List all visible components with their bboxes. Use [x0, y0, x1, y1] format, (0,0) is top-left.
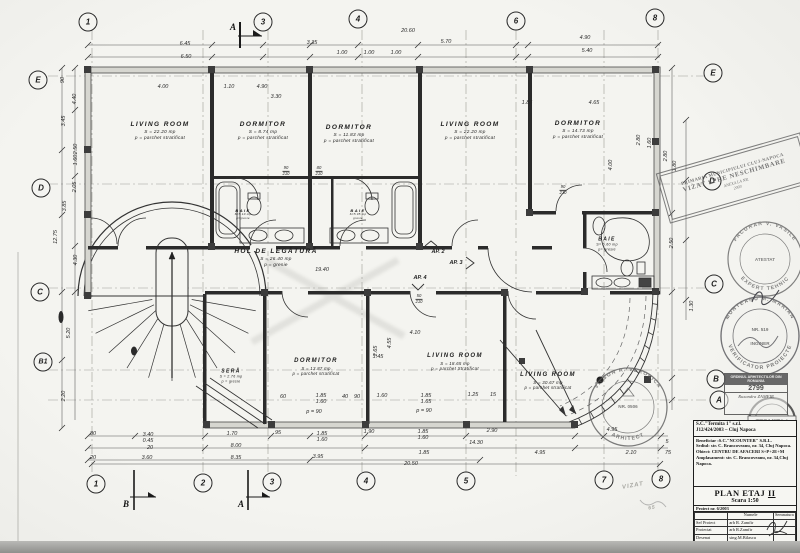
grid-marker: B	[707, 370, 726, 389]
pencil-note-number: 65	[648, 504, 656, 511]
room-label: DORMITOR S = 14.73 mp p = parchet strati…	[553, 120, 603, 140]
grid-marker: E	[704, 64, 723, 83]
apartment-label: AP. 3	[449, 260, 462, 266]
dimension-text: 95	[275, 430, 281, 436]
room-name: LIVING ROOM	[130, 121, 189, 129]
dimension-text: 6.45	[180, 41, 191, 47]
dimension-text: 20.60	[401, 28, 415, 34]
grid-marker: C	[705, 275, 724, 294]
grid-marker: 8	[652, 470, 671, 489]
grid-marker: 3	[254, 13, 273, 32]
door-size-tag: 80 210	[316, 166, 323, 176]
dimension-text: 2.80	[636, 135, 642, 146]
dimension-text: 4.95	[535, 450, 546, 456]
dimension-text: p = 90	[416, 408, 431, 414]
dimension-text: 1.60	[377, 393, 388, 399]
project-info: Beneficiar :S.C."NCOUNTER" S.R.L.Sediul:…	[694, 437, 796, 487]
dimension-text: 3.85	[62, 201, 68, 212]
room-label: LIVING ROOM S = 22.20 mp p = parchet str…	[440, 121, 499, 141]
dimension-text: 2.90	[487, 428, 498, 434]
room-floor-finish: p = gresie	[220, 379, 243, 383]
grid-marker: 1	[87, 475, 106, 494]
grid-marker: E	[29, 71, 48, 90]
dimension-text: 5.40	[582, 48, 593, 54]
dimension-text: 20.50	[404, 461, 418, 467]
dimension-text: 5	[665, 439, 668, 445]
dimension-text: 2.05	[72, 182, 78, 193]
room-name: LIVING ROOM	[427, 353, 483, 361]
dimension-text: 4.40	[72, 94, 78, 105]
grid-marker: 6	[507, 12, 526, 31]
dimension-text: 5.20	[66, 328, 72, 339]
grid-marker: 2	[194, 474, 213, 493]
apartment-label: AP. 4	[413, 275, 426, 281]
dimension-text: 3.95	[313, 454, 324, 460]
dimension-text: 80	[90, 431, 96, 437]
dimension-text: 6.50	[181, 54, 192, 60]
dimension-text: 2.50	[669, 238, 675, 249]
grid-marker: C	[31, 283, 50, 302]
room-name: LIVING ROOM	[520, 372, 576, 380]
apartment-label: AP. 2	[431, 249, 444, 255]
stamp-line: 2003	[733, 184, 742, 191]
dimension-text: 1.60	[317, 437, 328, 443]
room-floor-finish: p = parchet Stratificat	[427, 366, 483, 371]
dimension-text: 4.55	[387, 338, 393, 349]
dimension-text: 90	[354, 394, 360, 400]
company-info: S.C."Termita 1" s.r.l. J12/424/2003 – Cl…	[694, 421, 796, 437]
door-size-tag: 90 210	[560, 185, 567, 195]
room-label: SERĂ S = 2.76 mp p = gresie	[220, 368, 243, 383]
dimension-text: 15	[490, 392, 496, 398]
grid-marker: 4	[349, 10, 368, 29]
grid-marker: 8	[646, 9, 665, 28]
dimension-text: 1.85	[522, 100, 533, 106]
dimension-text: 4.95	[607, 427, 618, 433]
room-floor-finish: p = parchet stratificat	[238, 135, 288, 141]
dimension-text: 4.00	[608, 160, 614, 171]
dimension-text: 20	[147, 445, 153, 451]
dimension-text: 75	[665, 450, 671, 456]
dimension-text: 4.10	[410, 330, 421, 336]
door-height: 210	[560, 190, 567, 195]
stamp-oar-name: Ruxandra ZAMFIR	[725, 393, 787, 399]
dimension-text: p = 90	[306, 409, 321, 415]
dimension-text: 40	[342, 394, 348, 400]
drawing-title: PLAN ETAJ II	[694, 487, 796, 498]
room-name: DORMITOR	[553, 120, 603, 128]
dimension-text: 4.00	[158, 84, 169, 90]
grid-marker: 4	[357, 472, 376, 491]
dimension-text: 8.00	[231, 443, 242, 449]
grid-marker: 7	[595, 471, 614, 490]
room-name: LIVING ROOM	[440, 121, 499, 129]
dimension-text: 1.00	[337, 50, 348, 56]
room-name: DORMITOR	[324, 124, 374, 132]
room-floor-finish: p = gresie	[234, 262, 317, 268]
dimension-text: 0.45	[143, 438, 154, 444]
dimension-text: 1.70	[227, 431, 238, 437]
drawing-scale: Scara 1:50	[694, 498, 796, 506]
annotation-layer: 134681234578EDCB1EDCBA6.456.503.351.001.…	[0, 0, 800, 553]
dimension-text: 20	[90, 455, 96, 461]
door-height: 210	[316, 171, 323, 176]
dimension-text: 5.70	[441, 39, 452, 45]
drawing-stage: II	[768, 488, 776, 498]
grid-marker: B1	[34, 353, 53, 372]
dimension-text: 1.60	[647, 138, 653, 149]
dimension-text: 4.30	[73, 255, 79, 266]
room-label: HOL DE LEGĂTURĂ S = 26.40 mp p = gresie	[234, 248, 317, 268]
room-floor-finish: p= gresie	[596, 247, 617, 251]
stamp-line: VIZAT SPRE NESCHIMBARE	[682, 158, 786, 194]
stamp-oar: ORDINUL ARHITECTILOR DIN ROMANIA 2799 Ru…	[724, 373, 788, 415]
dimension-text: 1.60	[418, 435, 429, 441]
room-label: LIVING ROOM S = 22.20 mp p = parchet str…	[130, 121, 189, 141]
room-label: DORMITOR S = 13.87 mp p = parchet strati…	[292, 358, 339, 376]
room-name: DORMITOR	[238, 121, 288, 129]
title-block-signatures	[763, 514, 795, 540]
room-label: BAIE S=5.05 mp gresie	[350, 208, 367, 220]
room-floor-finish: p = parchet stratificat	[520, 385, 576, 390]
dimension-text: 12.75	[53, 230, 59, 244]
dimension-text: 2.50	[73, 144, 79, 155]
room-label: DORMITOR S = 11.83 mp p = parchet strati…	[324, 124, 374, 144]
drawing-title-text: PLAN ETAJ	[714, 488, 765, 498]
room-label: LIVING ROOM S = 30.67 mp p = parchet str…	[520, 372, 576, 390]
grid-marker: D	[32, 179, 51, 198]
dimension-text: 90	[60, 77, 66, 83]
dimension-text: 1.65	[421, 399, 432, 405]
dimension-text: 3.45	[61, 116, 67, 127]
dimension-text: 2.80	[663, 151, 669, 162]
dimension-text: 1.00	[364, 50, 375, 56]
room-label: BAIE S=5.10 mp p=gresie	[235, 208, 252, 220]
dimension-text: 14.30	[469, 440, 483, 446]
stamp-oar-number: 2799	[725, 385, 787, 393]
dimension-text: 1.10	[224, 84, 235, 90]
dimension-text: 8.35	[231, 455, 242, 461]
grid-marker: 5	[457, 472, 476, 491]
dimension-text: 4.65	[589, 100, 600, 106]
scan-edge-strip	[0, 541, 800, 553]
dimension-text: 2.20	[61, 391, 67, 402]
dimension-text: 3.30	[271, 94, 282, 100]
dimension-text: 2.10	[626, 450, 637, 456]
section-mark-letter: A	[238, 499, 244, 509]
dimension-text: 1.30	[689, 301, 695, 312]
room-floor-finish: p=gresie	[235, 217, 252, 221]
grid-marker: 1	[79, 13, 98, 32]
dimension-text: 1.60	[73, 155, 79, 166]
room-label: LIVING ROOM S = 18.65 mp p = parchet Str…	[427, 353, 483, 371]
grid-marker: 3	[263, 473, 282, 492]
stamp-oar-header: ORDINUL ARHITECTILOR DIN ROMANIA	[725, 374, 787, 385]
stamp-line: ANEXA LA NR.	[723, 176, 750, 188]
dimension-text: 1.85	[419, 450, 430, 456]
room-name: HOL DE LEGĂTURĂ	[234, 248, 317, 256]
dimension-text: 1.60	[316, 399, 327, 405]
dimension-text: 1.25	[468, 392, 479, 398]
door-height: 210	[416, 299, 423, 304]
scanned-floor-plan: FACURAR V. VASILE EXPERT TEHNIC ATESTAT …	[0, 0, 800, 553]
section-mark-letter: A	[230, 22, 236, 32]
dimension-text: 1.45	[373, 354, 384, 360]
dimension-text: 4.90	[257, 84, 268, 90]
room-floor-finish: p = parchet stratificat	[292, 371, 339, 376]
room-floor-finish: p = parchet stratificat	[324, 138, 374, 144]
door-height: 210	[283, 171, 290, 176]
room-name: DORMITOR	[292, 358, 339, 366]
section-mark-letter: B	[123, 499, 129, 509]
room-floor-finish: p = parchet stratificat	[440, 135, 499, 141]
room-floor-finish: p = parchet stratificat	[130, 135, 189, 141]
dimension-text: 1.90	[364, 429, 375, 435]
company-reg: J12/424/2003 – Cluj Napoca	[696, 428, 794, 434]
door-size-tag: 90 210	[283, 166, 290, 176]
room-label: DORMITOR S = 8.74 mp p = parchet stratif…	[238, 121, 288, 141]
dimension-text: 3.60	[142, 455, 153, 461]
room-floor-finish: gresie	[350, 217, 367, 221]
dimension-text: 4.90	[580, 35, 591, 41]
room-label: BAIE S= 6.60 mp p= gresie	[596, 236, 617, 251]
door-size-tag: 50 210	[416, 294, 423, 304]
dimension-text: 60	[280, 394, 286, 400]
dimension-text: 3.35	[307, 40, 318, 46]
dimension-text: 1.00	[391, 50, 402, 56]
room-floor-finish: p = parchet stratificat	[553, 134, 603, 140]
